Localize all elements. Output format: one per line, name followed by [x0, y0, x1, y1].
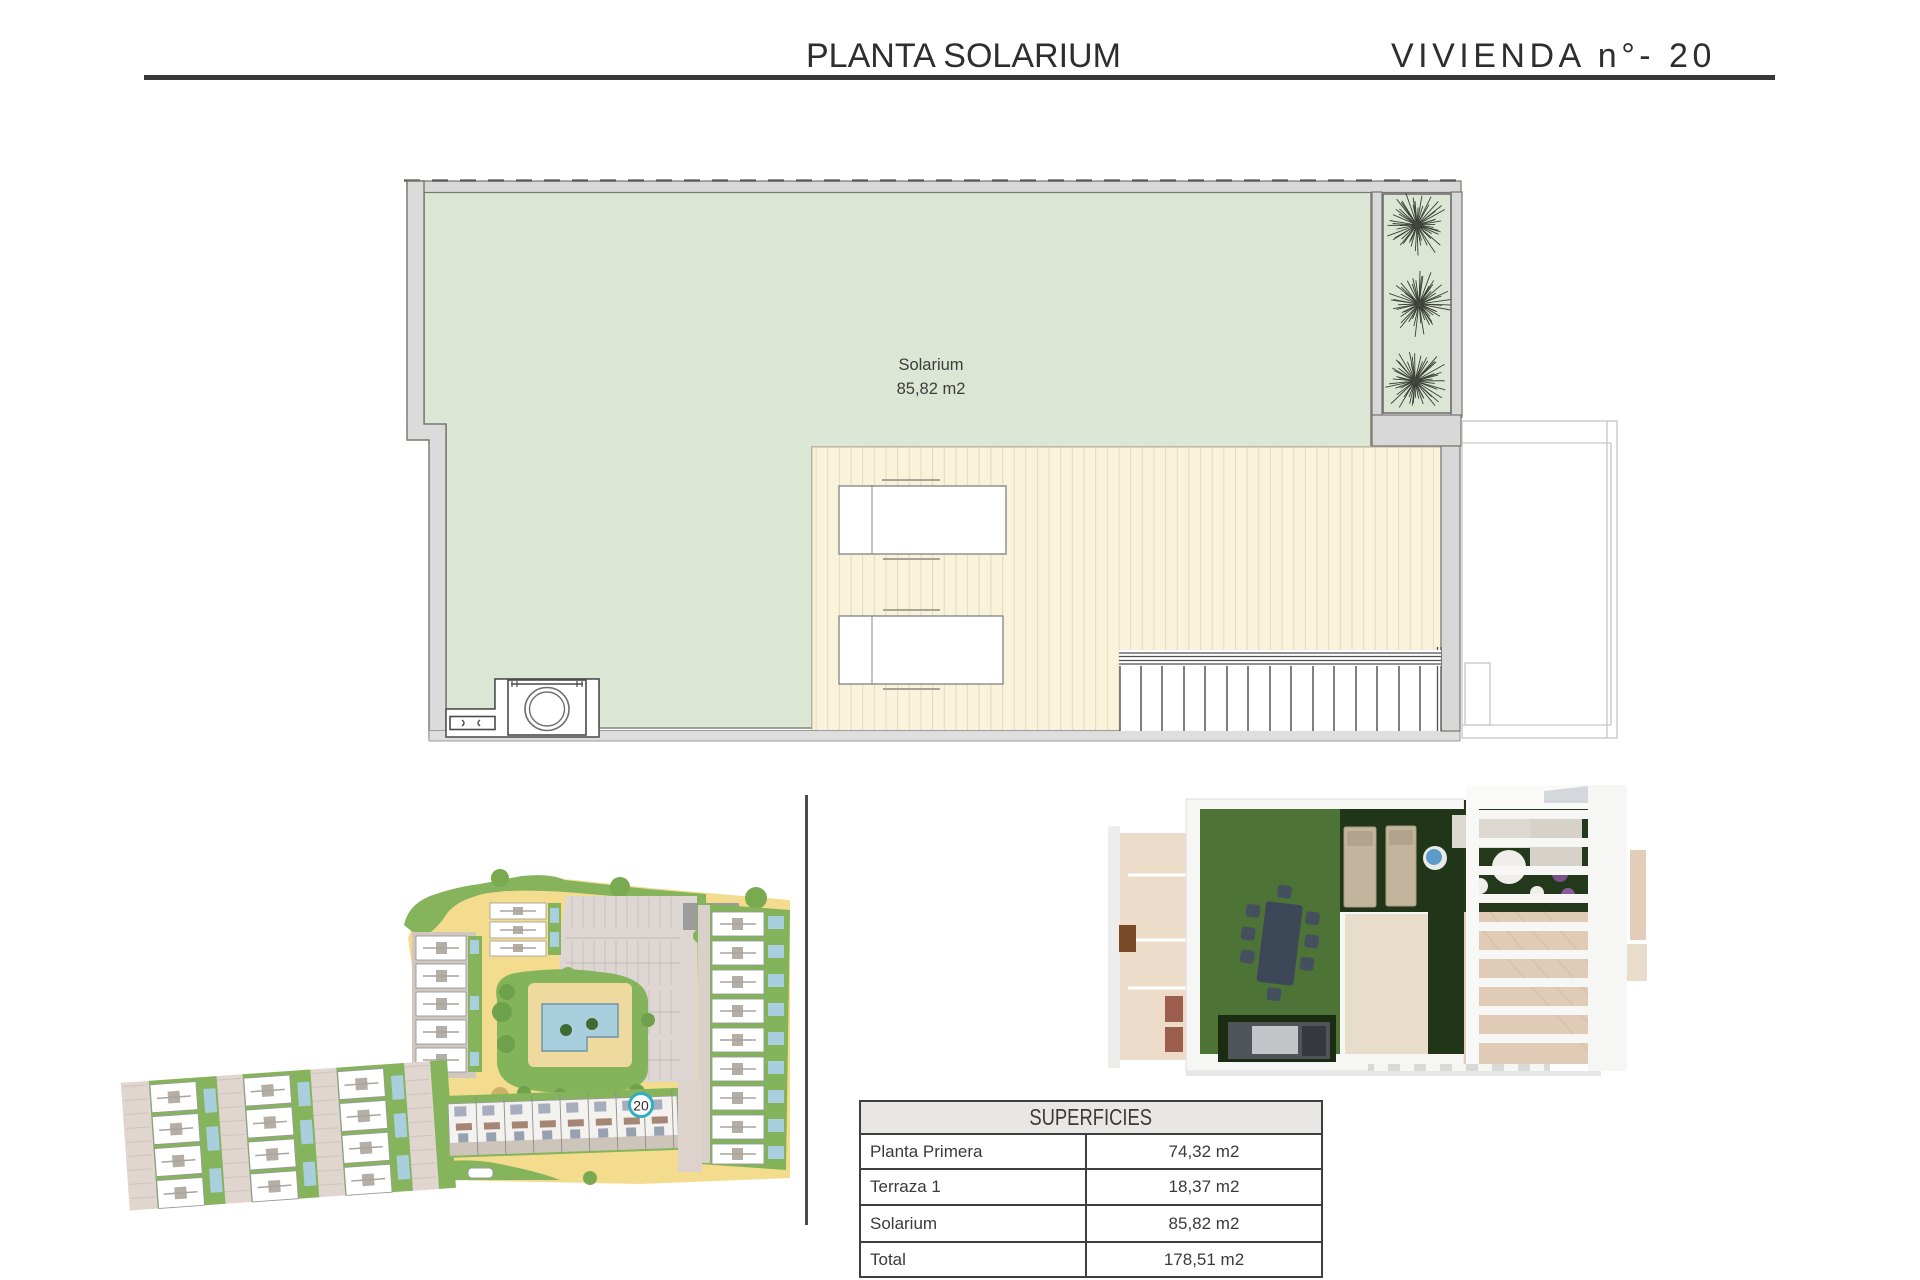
svg-text:85,82 m2: 85,82 m2 — [897, 380, 966, 398]
svg-text:Solarium: Solarium — [898, 356, 963, 374]
svg-text:20: 20 — [633, 1098, 649, 1114]
